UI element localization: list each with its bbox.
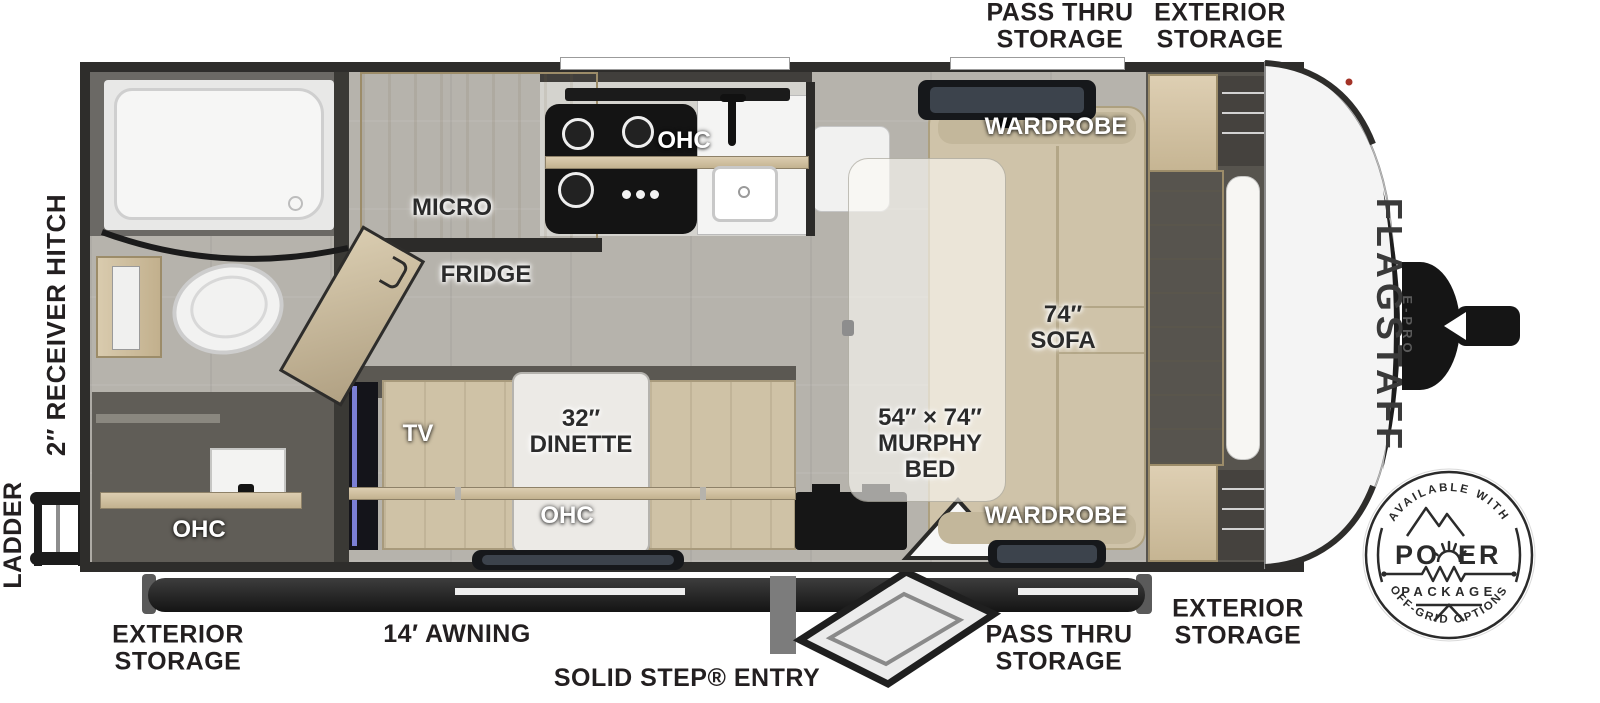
shelf-gap [455,487,461,500]
brand-e-pro: E-PRO [1400,295,1415,356]
marker-light [1346,79,1353,86]
window-top-sofa [950,57,1125,70]
coupler-highlight [1444,312,1466,340]
cooktop-knob [650,190,659,199]
awning-highlight-left [455,588,685,595]
bath-shelf [96,414,220,423]
murphy-bed-handle [842,320,854,336]
label-tv: TV [403,421,434,447]
burner-icon [558,172,594,208]
faucet [728,96,736,146]
label-sofa: 74″ SOFA [1030,302,1095,354]
burner-icon [562,118,594,150]
label-receiver-hitch: 2″ RECEIVER HITCH [43,194,71,456]
vent-glass [997,545,1097,563]
label-bath-ohc: OHC [172,517,225,543]
faucet-spout [720,94,746,102]
range-hood [565,88,790,101]
solid-step-graphic [756,558,1016,690]
floor-vent-dinette [472,550,684,570]
sink-drain [738,186,750,198]
window-top-kitchen [560,57,790,70]
awning-highlight-right [1018,588,1138,595]
label-murphy-bed: 54″ × 74″ MURPHY BED [878,405,982,483]
shelf-gap [700,487,706,500]
label-wardrobe-top: WARDROBE [985,114,1128,140]
badge-power-right: ER [1458,540,1502,570]
badge-power-left: PO [1395,540,1440,570]
wardrobe-cabinet-top [1148,74,1218,172]
label-awning: 14′ AWNING [383,621,531,648]
badge-ring [1366,472,1532,638]
label-kitchen-ohc: OHC [657,128,710,154]
label-ladder: LADDER [0,481,26,588]
label-top-exterior-storage: EXTERIOR STORAGE [1154,0,1286,53]
label-bottom-exterior-storage-left: EXTERIOR STORAGE [112,622,244,675]
wardrobe-cabinet-bottom [1148,464,1218,562]
dinette-ohc-shelf [340,487,796,500]
shower-door-arc [90,218,360,288]
label-bottom-exterior-storage-right: EXTERIOR STORAGE [1172,596,1304,649]
label-fridge: FRIDGE [441,262,532,288]
vent-glass [482,555,674,565]
floorplan-page: PASS THRU STORAGE EXTERIOR STORAGE 2″ RE… [0,0,1600,703]
tub-drain [288,196,303,211]
fridge-handle [379,256,410,291]
tv-screen-edge [352,386,357,546]
murphy-bed-folded-panel [1148,170,1224,466]
power-package-badge: AVAILABLE WITH PO ER PACKAGE OFF-GRID OP… [1358,464,1540,646]
label-dinette: 32″ DINETTE [530,406,633,458]
label-wardrobe-bottom: WARDROBE [985,503,1128,529]
badge-package: PACKAGE [1401,584,1497,599]
vent-glass [930,87,1084,113]
cooktop-knob [636,190,645,199]
label-dinette-ohc: OHC [540,503,593,529]
dinette-bench-right [648,380,796,550]
roof-vent-entry [988,540,1106,568]
bath-counter-strip [100,492,302,509]
cooktop-knob [622,190,631,199]
label-micro: MICRO [412,195,492,221]
label-top-pass-thru-storage: PASS THRU STORAGE [986,0,1133,53]
burner-icon [622,116,654,148]
